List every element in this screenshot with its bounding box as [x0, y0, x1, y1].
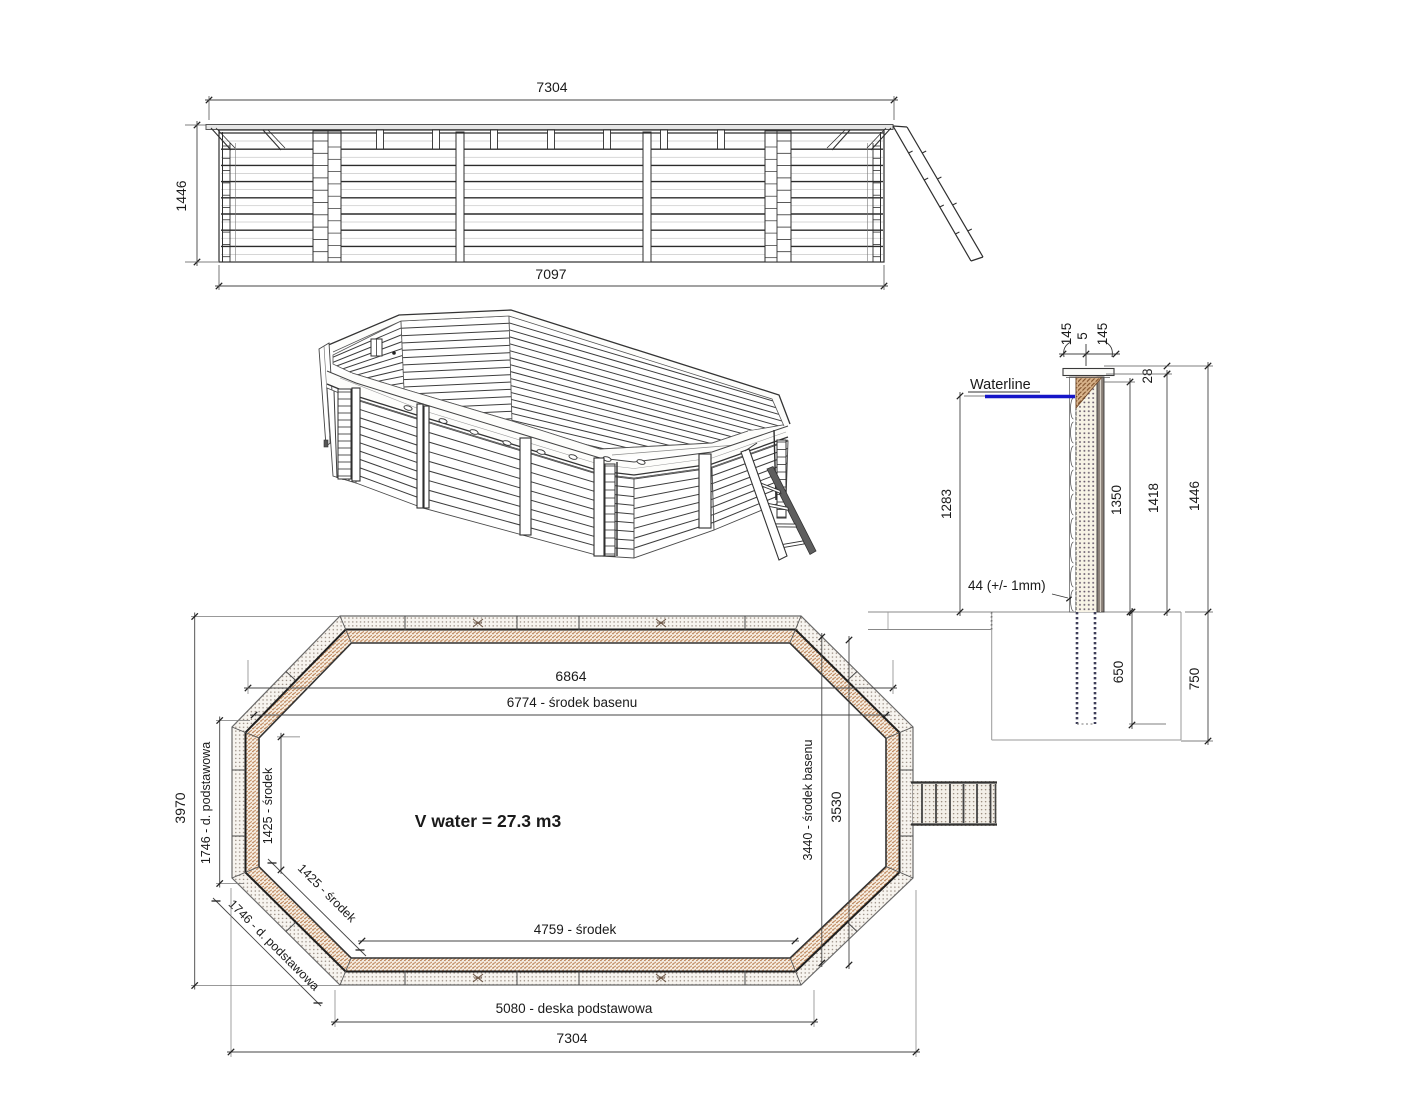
svg-text:3440 - środek basenu: 3440 - środek basenu	[801, 739, 815, 860]
svg-text:145: 145	[1095, 323, 1110, 346]
svg-text:750: 750	[1187, 668, 1202, 691]
svg-text:1446: 1446	[173, 180, 189, 211]
svg-text:44 (+/- 1mm): 44 (+/- 1mm)	[968, 578, 1046, 593]
svg-text:3530: 3530	[828, 791, 844, 822]
svg-text:5080 - deska podstawowa: 5080 - deska podstawowa	[496, 1001, 653, 1016]
svg-text:6774 - środek basenu: 6774 - środek basenu	[507, 695, 638, 710]
svg-text:1425 - środek: 1425 - środek	[261, 767, 275, 844]
svg-text:145: 145	[1059, 323, 1074, 346]
svg-text:1746 - d. podstawowa: 1746 - d. podstawowa	[199, 742, 213, 864]
svg-text:4759 - środek: 4759 - środek	[534, 922, 617, 937]
svg-text:1446: 1446	[1187, 481, 1202, 511]
svg-text:7304: 7304	[536, 79, 567, 95]
svg-text:7304: 7304	[556, 1030, 587, 1046]
svg-text:5: 5	[1075, 332, 1090, 340]
svg-text:1350: 1350	[1109, 485, 1124, 515]
svg-text:28: 28	[1140, 368, 1155, 383]
svg-text:Waterline: Waterline	[970, 377, 1031, 393]
svg-text:650: 650	[1111, 661, 1126, 684]
svg-text:V water = 27.3 m3: V water = 27.3 m3	[415, 811, 562, 831]
svg-text:7097: 7097	[535, 266, 566, 282]
svg-text:1283: 1283	[939, 489, 954, 519]
svg-text:6864: 6864	[555, 668, 586, 684]
svg-text:3970: 3970	[172, 792, 188, 823]
svg-text:1418: 1418	[1146, 483, 1161, 513]
